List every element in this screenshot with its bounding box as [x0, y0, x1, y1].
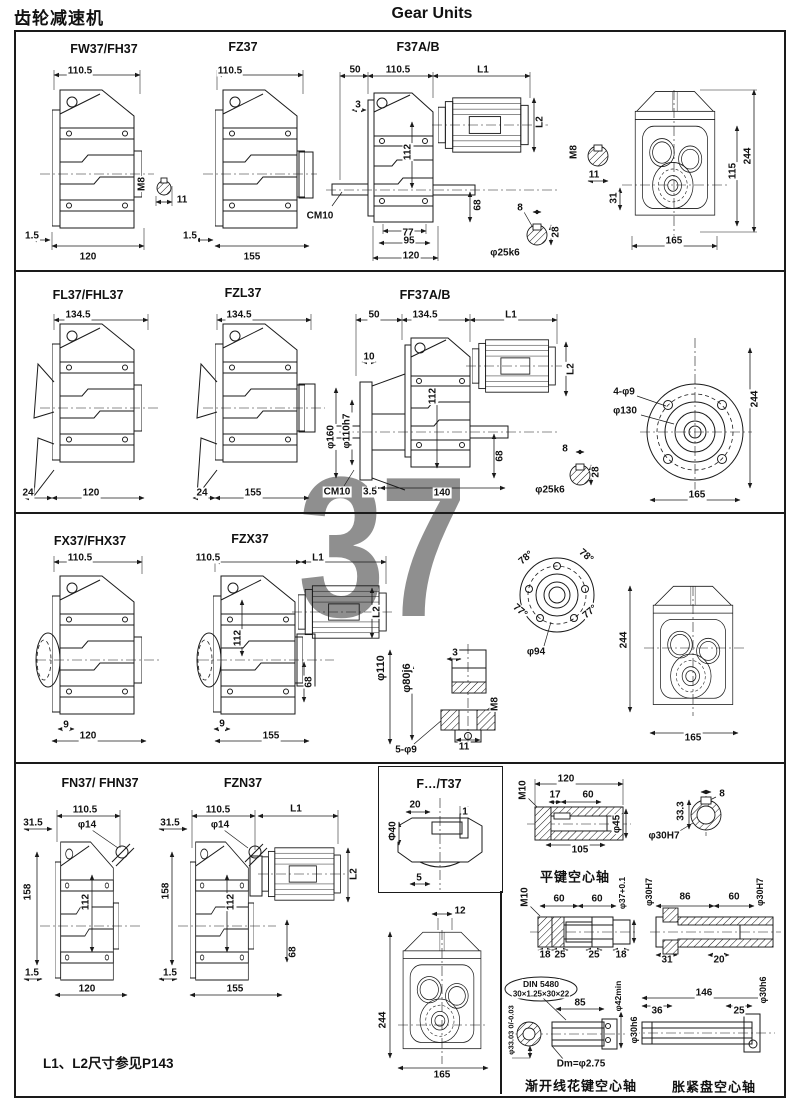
drawing-bodies	[52, 90, 733, 1049]
footnote: L1、L2尺寸参见P143	[43, 1052, 174, 1072]
page-title-english: Gear Units	[392, 5, 473, 23]
gearbox-fzx37	[213, 576, 303, 714]
gearbox-fzn37	[190, 842, 254, 980]
technical-drawing-linework	[0, 0, 800, 1112]
catalog-page: 齿轮减速机 Gear Units 37	[0, 0, 800, 1112]
gearbox-fz37	[215, 90, 305, 228]
generated-linework	[24, 70, 781, 1068]
gearbox-fx37	[52, 576, 142, 714]
gearbox-fl37	[52, 324, 142, 462]
page-title-chinese: 齿轮减速机	[14, 4, 104, 29]
front-view-row1	[635, 92, 715, 216]
gearbox-fw37	[52, 90, 142, 228]
gearbox-fzl37	[215, 324, 305, 462]
gearbox-fn37	[55, 842, 119, 980]
